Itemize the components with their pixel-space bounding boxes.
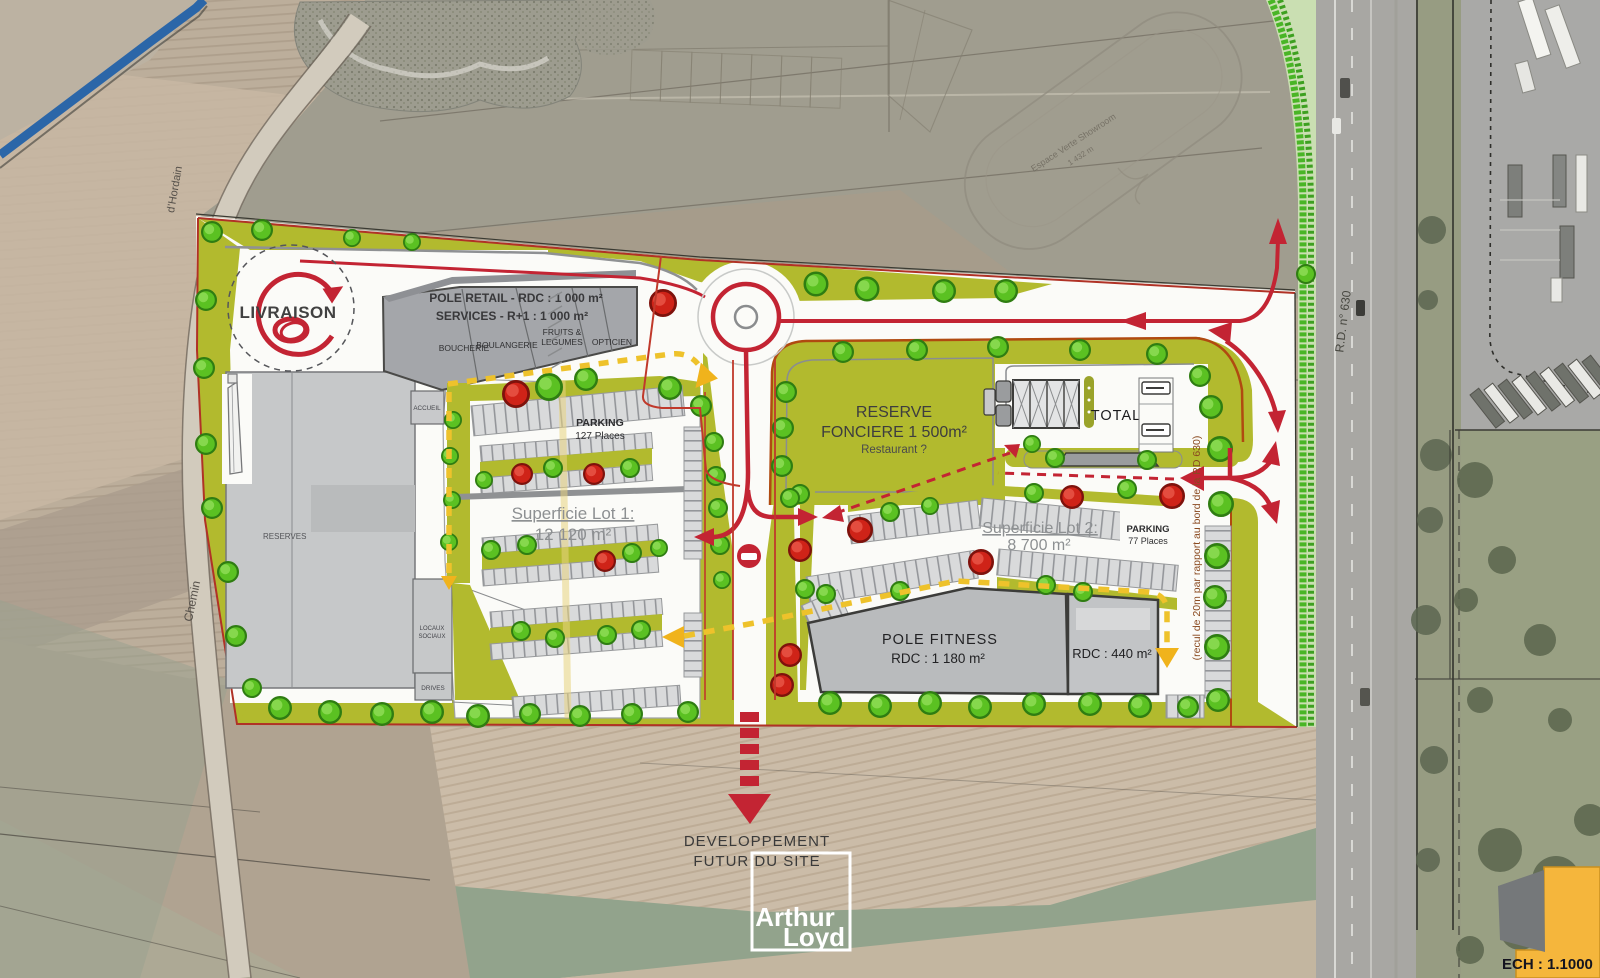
svg-text:ACCUEIL: ACCUEIL [413,405,441,412]
svg-text:Superficie Lot 2:: Superficie Lot 2: [982,520,1098,537]
svg-text:DEVELOPPEMENT: DEVELOPPEMENT [684,833,830,850]
svg-text:BOULANGERIE: BOULANGERIE [476,340,538,350]
svg-text:RDC : 440 m²: RDC : 440 m² [1072,646,1152,661]
svg-text:TOTAL: TOTAL [1091,408,1141,424]
svg-text:LIVRAISON: LIVRAISON [239,303,336,322]
svg-text:RESERVE: RESERVE [856,404,932,421]
svg-text:ECH : 1.1000: ECH : 1.1000 [1502,956,1593,973]
svg-text:RESERVES: RESERVES [263,532,306,541]
svg-text:77 Places: 77 Places [1128,536,1168,546]
svg-text:SOCIAUX: SOCIAUX [418,634,445,640]
svg-text:FUTUR DU SITE: FUTUR DU SITE [693,853,820,870]
svg-text:Loyd: Loyd [783,922,845,952]
svg-text:Restaurant ?: Restaurant ? [861,444,927,456]
svg-text:POLE FITNESS: POLE FITNESS [882,632,998,648]
svg-text:(recul de 20m par rapport au b: (recul de 20m par rapport au bord de la … [1191,436,1203,661]
svg-text:8 700 m²: 8 700 m² [1007,537,1071,554]
svg-text:RDC : 1 180 m²: RDC : 1 180 m² [891,651,985,666]
svg-text:SERVICES - R+1 : 1 000 m²: SERVICES - R+1 : 1 000 m² [436,309,588,323]
svg-text:PARKING: PARKING [1126,524,1169,535]
svg-text:OPTICIEN: OPTICIEN [592,337,632,347]
svg-text:Superficie Lot 1:: Superficie Lot 1: [512,504,635,523]
svg-text:LEGUMES: LEGUMES [541,337,583,347]
svg-text:POLE RETAIL - RDC : 1 000 m²: POLE RETAIL - RDC : 1 000 m² [429,291,603,305]
svg-text:PARKING: PARKING [576,417,624,429]
svg-text:FONCIERE 1 500m²: FONCIERE 1 500m² [821,424,967,441]
svg-text:127 Places: 127 Places [575,431,624,442]
svg-text:12 120 m²: 12 120 m² [535,525,612,544]
svg-text:LOCAUX: LOCAUX [420,626,445,632]
svg-text:DRIVES: DRIVES [421,685,444,692]
